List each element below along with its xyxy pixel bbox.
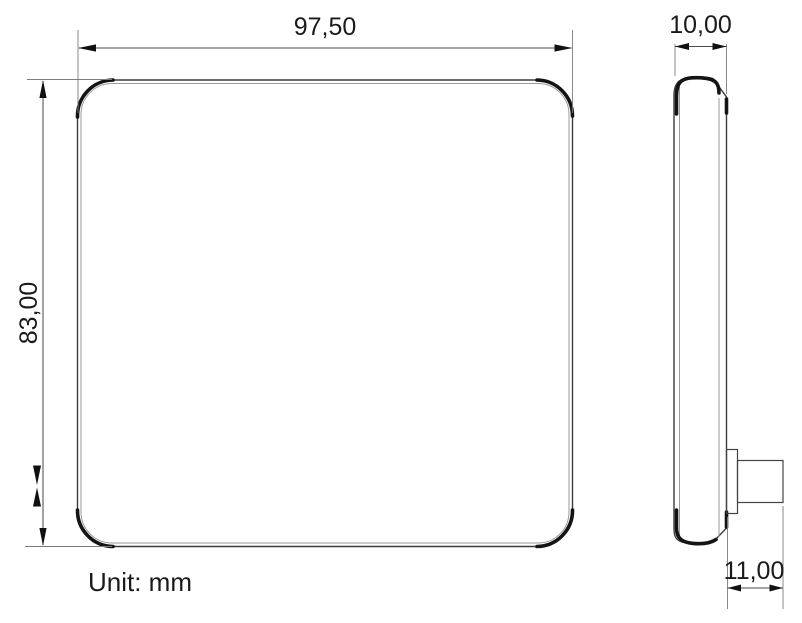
side-view [674, 77, 783, 544]
width-arrow-right [555, 44, 573, 51]
stem-length-dimension: 11,00 [724, 506, 785, 609]
thickness-arrow-right [713, 43, 727, 50]
height-arrow-top [39, 80, 46, 98]
height-sub-arrow-up [33, 488, 41, 507]
front-view [77, 80, 572, 547]
height-dimension-label: 83,00 [15, 282, 43, 345]
mounting-stem [738, 461, 784, 503]
width-dimension-label: 97,50 [294, 13, 357, 41]
thickness-dimension-label: 10,00 [669, 11, 732, 39]
mounting-flange [727, 450, 738, 514]
technical-drawing: 97,50 83,00 [0, 0, 802, 623]
front-corner-arc-top-left [77, 80, 113, 117]
height-dimension: 83,00 [15, 80, 112, 547]
front-corner-arc-bottom-left [77, 510, 113, 547]
height-arrow-bottom [39, 528, 46, 546]
height-sub-arrow-down [33, 466, 41, 486]
dimension-drawing-canvas: 97,50 83,00 [0, 0, 802, 623]
width-dimension: 97,50 [78, 13, 573, 113]
thickness-arrow-left [675, 43, 689, 50]
front-outline-inner [81, 84, 569, 544]
stem-arrow-right [770, 585, 784, 592]
front-corner-arc-bottom-right [537, 510, 573, 547]
front-corner-arc-top-right [537, 80, 573, 116]
side-accent-bottom [677, 510, 717, 544]
side-accent-top [677, 78, 720, 114]
stem-arrow-left [728, 585, 742, 592]
unit-label: Unit: mm [88, 567, 192, 597]
stem-dimension-label: 11,00 [724, 557, 785, 585]
width-arrow-left [78, 44, 96, 51]
front-outline-outer [78, 80, 573, 547]
